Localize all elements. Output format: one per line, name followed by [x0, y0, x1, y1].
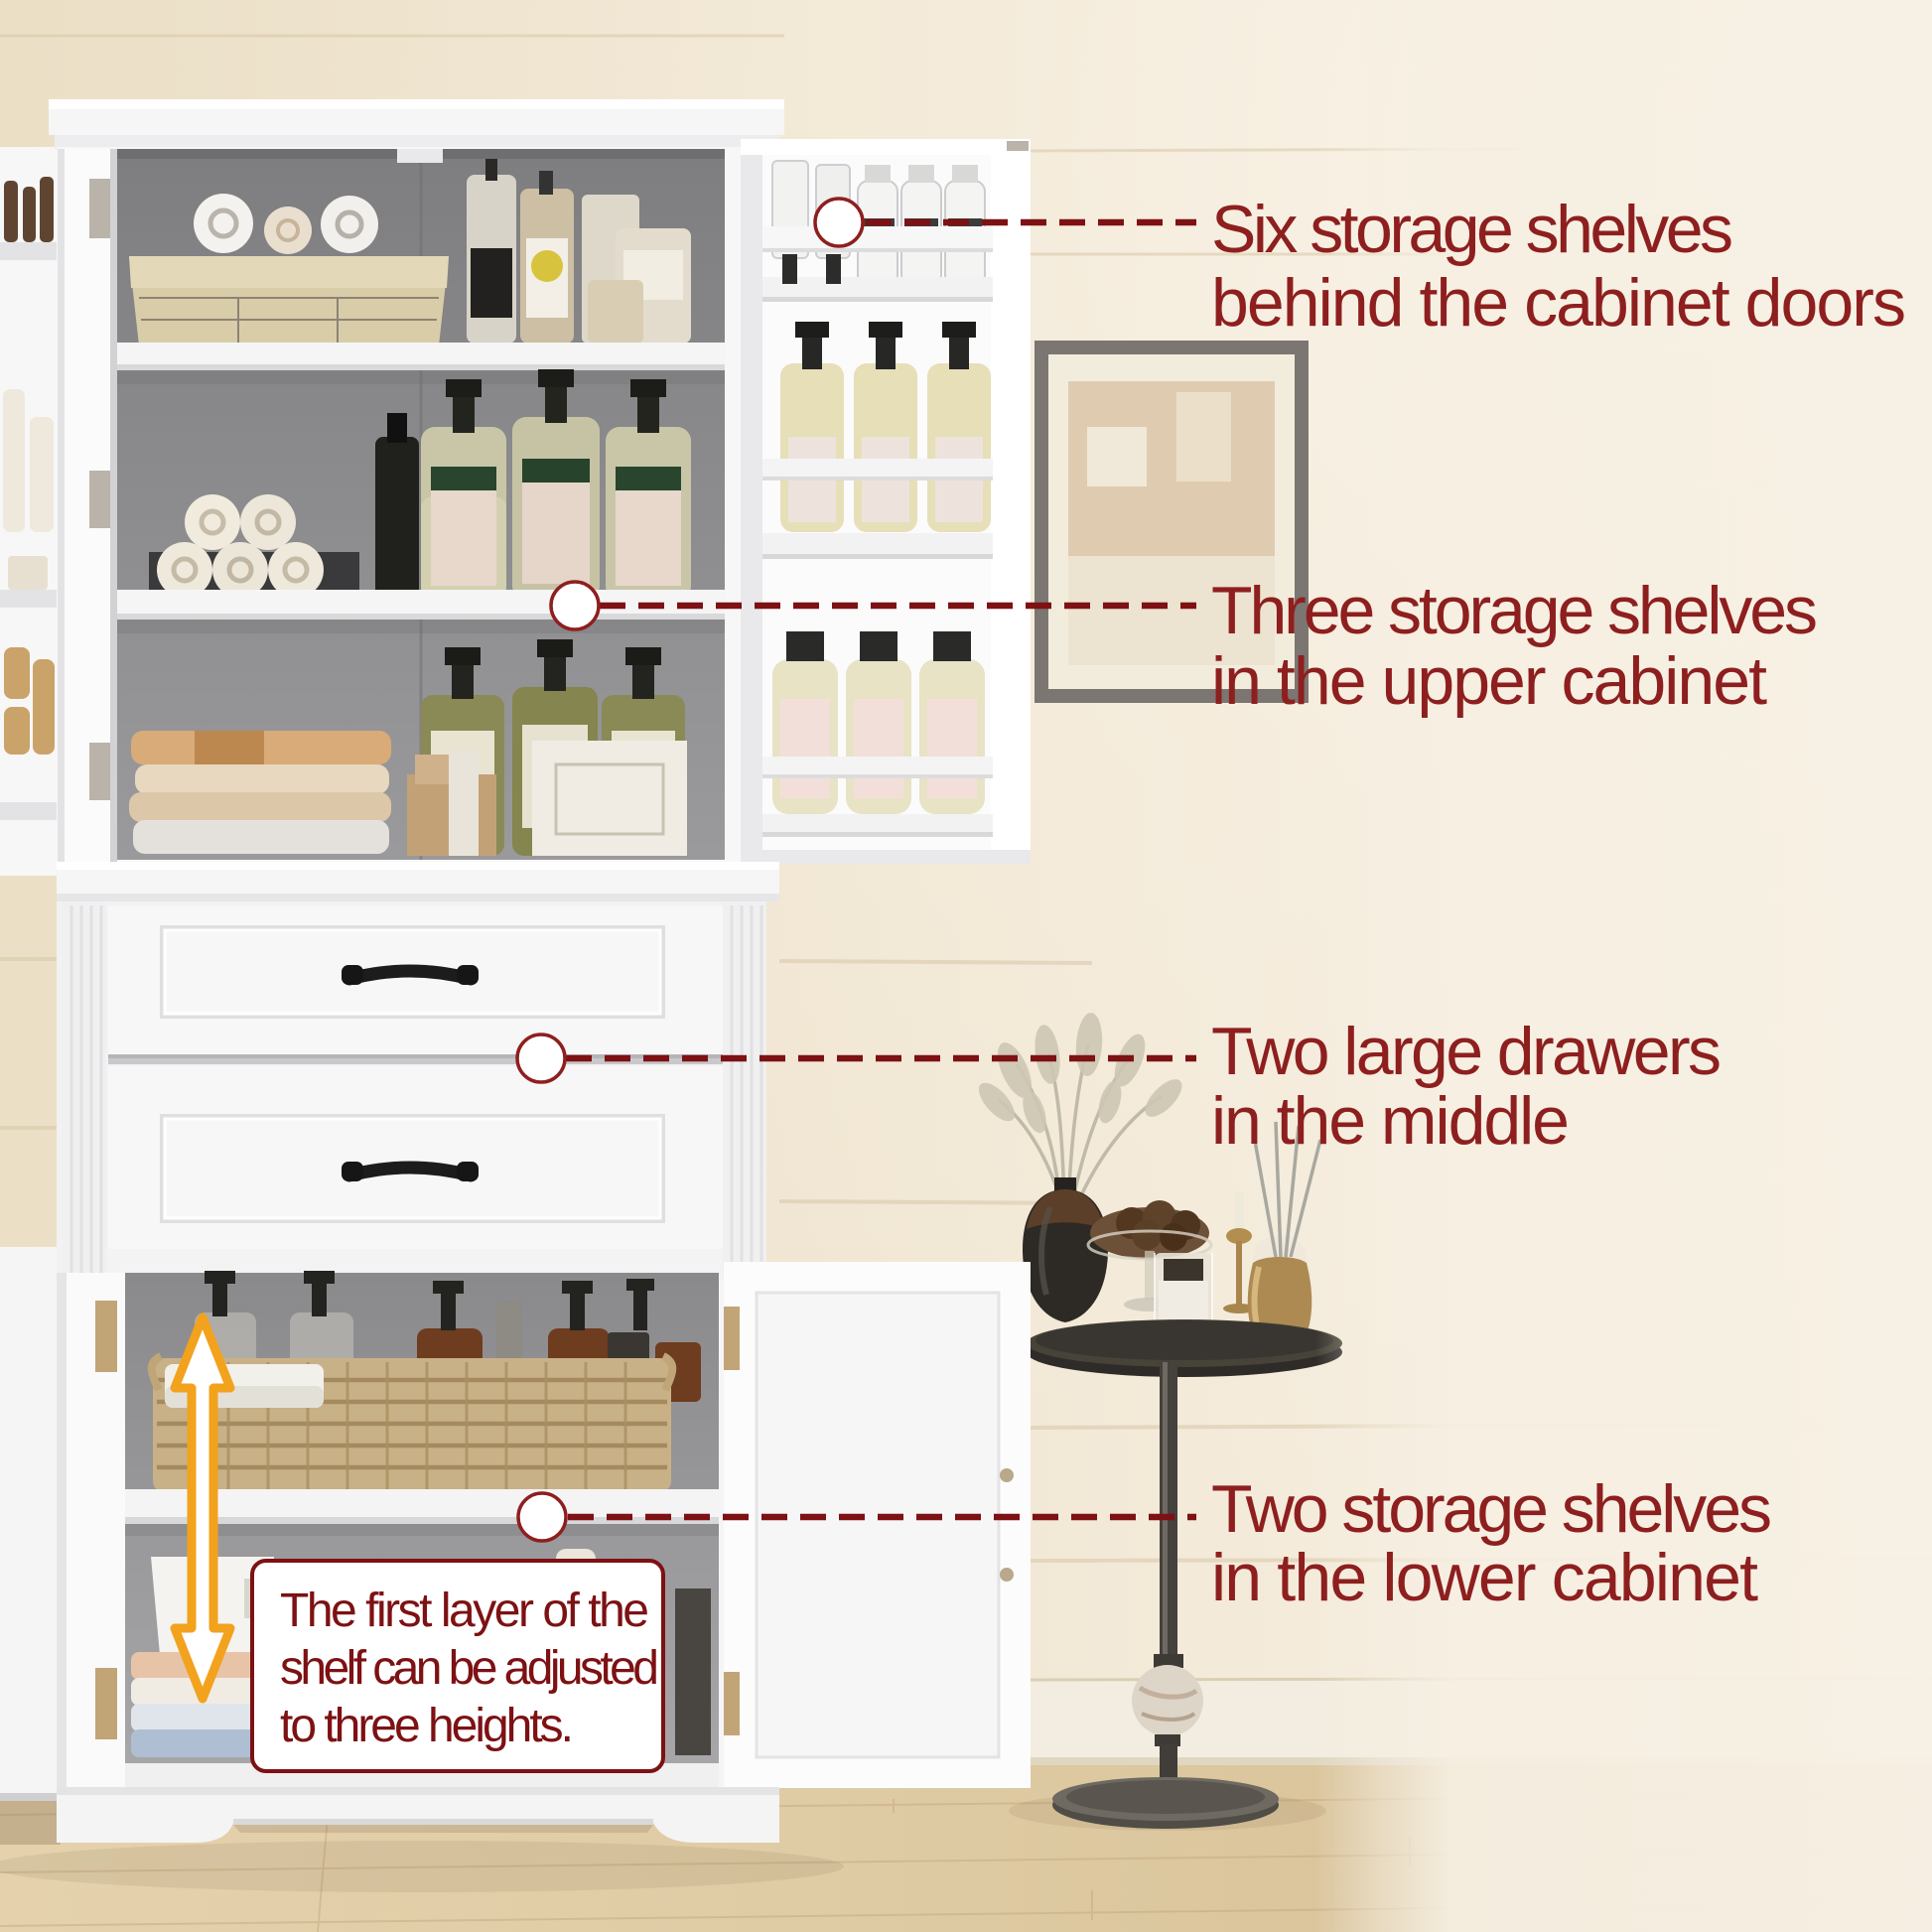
svg-text:in the lower cabinet: in the lower cabinet: [1211, 1540, 1758, 1615]
svg-text:behind the cabinet doors: behind the cabinet doors: [1211, 265, 1906, 341]
svg-text:to three heights.: to three heights.: [280, 1700, 574, 1752]
svg-text:Three storage shelves: Three storage shelves: [1211, 573, 1818, 648]
svg-text:shelf can be adjusted: shelf can be adjusted: [280, 1642, 659, 1695]
svg-text:in the middle: in the middle: [1211, 1083, 1570, 1159]
svg-text:Two storage shelves: Two storage shelves: [1211, 1471, 1772, 1547]
svg-text:Two large drawers: Two large drawers: [1211, 1014, 1722, 1089]
svg-text:Six storage shelves: Six storage shelves: [1211, 192, 1733, 267]
svg-text:The first layer of the: The first layer of the: [280, 1585, 649, 1637]
svg-text:in the upper cabinet: in the upper cabinet: [1211, 643, 1767, 719]
